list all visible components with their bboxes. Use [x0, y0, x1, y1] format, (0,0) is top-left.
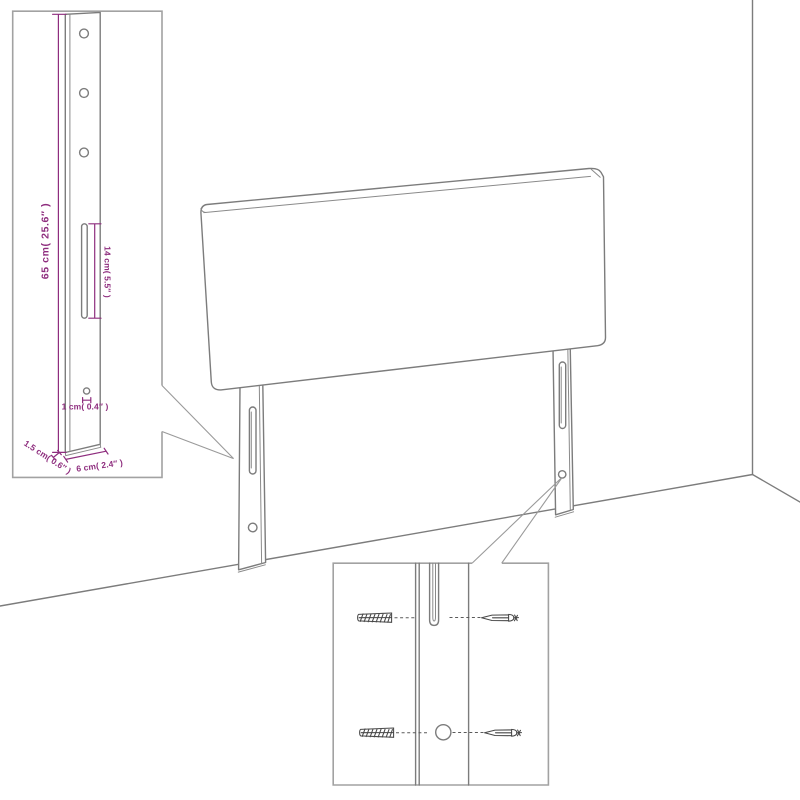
bracket-slot — [82, 224, 88, 318]
dim-line-height — [53, 14, 66, 452]
leg-detail-inset: 65 cm( 25.6″ ) 14 cm( 5.5″ ) 1 cm( 0.4″ … — [13, 11, 162, 477]
right-leg-slot — [559, 362, 565, 429]
leg-closeup-slot-inner — [433, 563, 436, 621]
leg-closeup — [416, 563, 469, 785]
leg-closeup-slot-outer — [430, 563, 439, 625]
screw-icon — [485, 729, 522, 736]
mounting-inset-border — [333, 563, 548, 785]
fastener-row-hole — [360, 728, 522, 737]
dim-label-width: 6 cm( 2.4″ ) — [76, 457, 124, 473]
headboard-outline — [201, 168, 606, 389]
right-leg — [553, 346, 574, 517]
product-diagram: 65 cm( 25.6″ ) 14 cm( 5.5″ ) 1 cm( 0.4″ … — [0, 0, 800, 800]
leg-bracket-drawing — [65, 12, 100, 455]
wall-plug-icon — [358, 613, 392, 622]
dim-label-height: 65 cm( 25.6″ ) — [40, 203, 52, 279]
dim-label-slot: 14 cm( 5.5″ ) — [103, 246, 113, 298]
callout-lines-left-inset — [162, 386, 234, 459]
headboard-panel — [201, 168, 606, 389]
dim-label-hole: 1 cm( 0.4″ ) — [62, 402, 109, 412]
mounting-detail-inset — [333, 563, 548, 785]
main-drawing — [0, 0, 800, 606]
screw-icon — [482, 614, 519, 621]
left-leg-slot — [249, 407, 256, 474]
left-leg — [238, 384, 265, 572]
wall-plug-icon — [360, 728, 394, 737]
diagram-canvas: 65 cm( 25.6″ ) 14 cm( 5.5″ ) 1 cm( 0.4″ … — [0, 0, 800, 800]
leg-closeup-edges — [416, 563, 469, 785]
leg-closeup-hole — [436, 725, 451, 740]
floor-line-left — [0, 475, 753, 607]
floor-line-right — [753, 475, 800, 503]
